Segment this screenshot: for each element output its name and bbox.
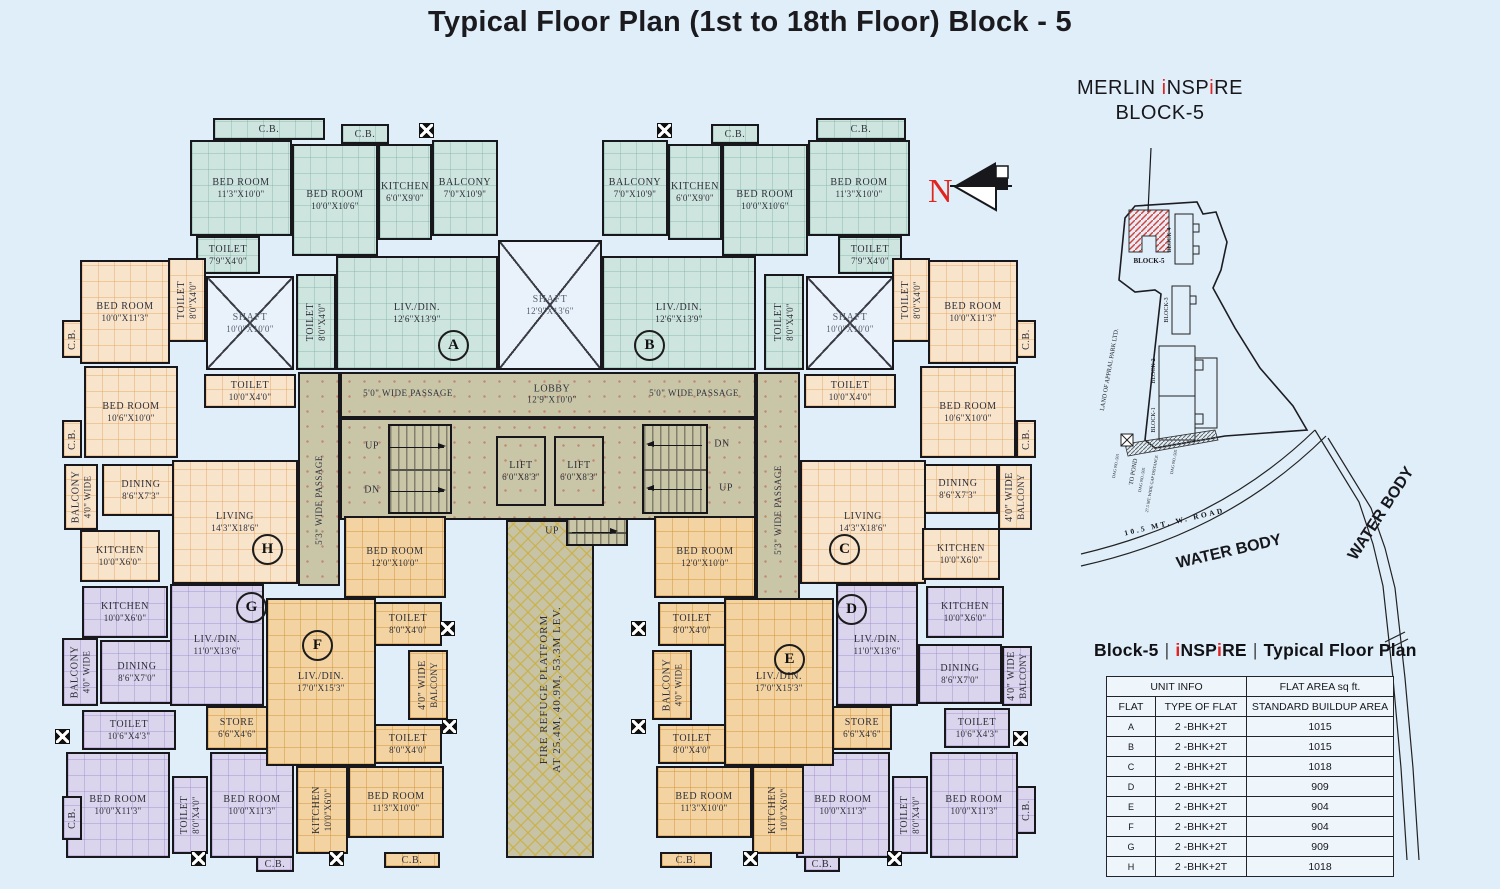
room-name: C.B. <box>67 329 78 350</box>
room-name: TOILET <box>179 796 190 834</box>
room-dimensions: 8'0"X4'0" <box>191 796 201 834</box>
wall-x-mark <box>1013 731 1028 746</box>
plan-label: LOBBY12'9"X10'0" <box>527 384 577 405</box>
wall-x-mark <box>55 729 70 744</box>
room-dimensions: 10'0"X4'0" <box>829 392 872 402</box>
room-toilet: TOILET8'0"X4'0" <box>168 258 206 342</box>
room-name: TOILET <box>110 719 148 730</box>
plan-label: UP <box>719 483 733 494</box>
room-toilet: TOILET8'0"X4'0" <box>658 724 726 764</box>
plan-label: UP <box>545 526 559 537</box>
table-row: B2 -BHK+2T1015 <box>1107 737 1394 757</box>
project-brand: MERLIN iNSPiRE BLOCK-5 <box>1055 76 1265 126</box>
wall-x-mark <box>657 123 672 138</box>
room-name: 4'0" WIDE <box>1004 472 1015 522</box>
room-dimensions: 6'0"X9'0" <box>386 193 424 203</box>
room-name: SHAFT <box>833 312 868 323</box>
table-row: D2 -BHK+2T909 <box>1107 777 1394 797</box>
room-name: TOILET <box>831 380 869 391</box>
room-dining: DINING8'6"X7'0" <box>918 644 1002 704</box>
room-name: DINING <box>117 661 156 672</box>
flat-b-mark: B <box>634 330 665 361</box>
room-toilet: TOILET10'6"X4'3" <box>944 708 1010 748</box>
room-dimensions: 11'0"X13'6" <box>853 646 900 656</box>
col-header: TYPE OF FLAT <box>1156 697 1247 717</box>
room-dining: DINING8'6"X7'0" <box>100 640 174 704</box>
wall-x-mark <box>442 719 457 734</box>
room-name: BED ROOM <box>736 189 793 200</box>
room-toilet: TOILET10'0"X4'0" <box>204 374 296 408</box>
room-dimensions: 8'6"X7'0" <box>941 675 979 685</box>
room-dimensions: 10'0"X11'3" <box>94 806 141 816</box>
north-arrow-icon: N <box>920 150 1020 220</box>
room-name: LIVING <box>844 511 882 522</box>
room-liv-din: LIV./DIN.17'0"X15'3" <box>724 598 834 766</box>
room-name: C.B. <box>259 124 280 135</box>
room-name: KITCHEN <box>381 181 429 192</box>
wall-x-mark <box>631 719 646 734</box>
north-arrow-outline <box>954 186 996 210</box>
room-dimensions: 4'0" WIDE <box>81 651 91 694</box>
room-c-b: C.B. <box>213 118 325 140</box>
room-name: TOILET <box>176 281 187 319</box>
room-dimensions: 14'3"X18'6" <box>211 523 258 533</box>
room-bed-room: BED ROOM10'0"X11'3" <box>80 260 170 364</box>
room-lift: LIFT6'0"X8'3" <box>554 436 604 506</box>
room-dimensions: 12'6"X13'9" <box>655 314 702 324</box>
room-dimensions: 10'0"X10'0" <box>226 324 273 334</box>
plan-label: 5'0" WIDE PASSAGE <box>649 388 739 398</box>
room-balcony: BALCONY4'0" WIDE <box>652 650 692 720</box>
room-name: C.B. <box>851 124 872 135</box>
room-dimensions: 8'0"X4'0" <box>317 303 327 341</box>
room-name: TOILET <box>305 303 316 341</box>
room-name: TOILET <box>209 244 247 255</box>
room-name: C.B. <box>1021 800 1032 821</box>
room-name: BED ROOM <box>675 791 732 802</box>
stair-direction-arrow <box>648 445 702 446</box>
room-name: BALCONY <box>69 646 80 699</box>
room-dimensions: 10'0"X6'0" <box>104 613 147 623</box>
room-name: TOILET <box>389 613 427 624</box>
wall-x-mark <box>631 621 646 636</box>
room-bed-room: BED ROOM10'0"X11'3" <box>928 260 1018 364</box>
project-block: BLOCK-5 <box>1055 101 1265 126</box>
room-balcony: BALCONY7'0"X10'9" <box>602 140 668 236</box>
room-dimensions: 11'3"X10'0" <box>372 803 419 813</box>
room-dimensions: 10'0"X11'3" <box>949 313 996 323</box>
flat-g-mark: G <box>236 592 267 623</box>
room-bed-room: BED ROOM10'6"X10'0" <box>84 366 178 458</box>
room-c-b: C.B. <box>804 856 840 872</box>
plan-label: 5'0" WIDE PASSAGE <box>363 388 453 398</box>
flat-c-mark: C <box>829 534 860 565</box>
room-name: STORE <box>220 717 255 728</box>
room-lift: LIFT6'0"X8'3" <box>496 436 546 506</box>
room-dimensions: 6'0"X8'3" <box>560 472 598 482</box>
room-name: BED ROOM <box>830 177 887 188</box>
room-dimensions: 6'0"X9'0" <box>676 193 714 203</box>
room-dining: DINING8'6"X7'3" <box>102 464 180 516</box>
stair-direction-arrow <box>390 491 444 492</box>
room-name: KITCHEN <box>311 786 322 834</box>
room-dimensions: 7'0"X10'9" <box>444 189 487 199</box>
room-name: BED ROOM <box>676 546 733 557</box>
room-name: KITCHEN <box>767 786 778 834</box>
table-row: F2 -BHK+2T904 <box>1107 817 1394 837</box>
room-name: BED ROOM <box>306 189 363 200</box>
room-name: LIFT <box>509 460 533 471</box>
plan-label: DN <box>364 485 379 496</box>
room-living: LIVING14'3"X18'6" <box>172 460 298 584</box>
room-name: TOILET <box>231 380 269 391</box>
room-dimensions: 7'9"X4'0" <box>209 256 247 266</box>
room-toilet: TOILET8'0"X4'0" <box>658 602 726 646</box>
room-dimensions: 4'0" WIDE <box>673 664 683 707</box>
room-dimensions: 12'9"X13'6" <box>526 306 573 316</box>
room-name: LIFT <box>567 460 591 471</box>
wall-x-mark <box>191 851 206 866</box>
room-dimensions: 11'0"X13'6" <box>193 646 240 656</box>
room-toilet: TOILET8'0"X4'0" <box>892 776 928 854</box>
room-dimensions: BALCONY <box>1018 653 1028 699</box>
room-dimensions: 10'0"X10'6" <box>741 201 788 211</box>
wall-x-mark <box>329 851 344 866</box>
room-shaft: SHAFT10'0"X10'0" <box>806 276 894 370</box>
flat-a-mark: A <box>438 330 469 361</box>
north-arrow-square <box>996 178 1008 190</box>
room-c-b: C.B. <box>256 856 294 872</box>
room-liv-din: LIV./DIN.17'0"X15'3" <box>266 598 376 766</box>
room-name: LIVING <box>216 511 254 522</box>
room-kitchen: KITCHEN10'0"X6'0" <box>80 530 160 582</box>
room-name: BALCONY <box>609 177 662 188</box>
room-name: KITCHEN <box>96 545 144 556</box>
room-dimensions: 8'0"X4'0" <box>912 281 922 319</box>
room-bed-room: BED ROOM10'0"X11'3" <box>930 752 1018 858</box>
room-bed-room: BED ROOM12'0"X10'0" <box>344 516 446 598</box>
project-name: MERLIN iNSPiRE <box>1055 76 1265 101</box>
room-name: DINING <box>940 663 979 674</box>
room-dimensions: 12'0"X10'0" <box>371 558 418 568</box>
room-name: BED ROOM <box>102 401 159 412</box>
room-name: 4'0" WIDE <box>417 660 428 710</box>
col-header: STANDARD BUILDUP AREA <box>1247 697 1394 717</box>
room-name: TOILET <box>958 717 996 728</box>
room-toilet: TOILET10'0"X4'0" <box>804 374 896 408</box>
room-name: BED ROOM <box>366 546 423 557</box>
room-name: SHAFT <box>233 312 268 323</box>
table-row: C2 -BHK+2T1018 <box>1107 757 1394 777</box>
table-row: H2 -BHK+2T1018 <box>1107 857 1394 877</box>
room-bed-room: BED ROOM11'3"X10'0" <box>808 140 910 236</box>
room-name: BED ROOM <box>945 794 1002 805</box>
room-toilet: TOILET8'0"X4'0" <box>374 602 442 646</box>
wall-x-mark <box>419 123 434 138</box>
room-dimensions: 11'3"X10'0" <box>680 803 727 813</box>
room-dimensions: 12'6"X13'9" <box>393 314 440 324</box>
room-name: KITCHEN <box>941 601 989 612</box>
room-name: C.B. <box>355 129 376 140</box>
room-name: BALCONY <box>661 659 672 712</box>
room-living: LIVING14'3"X18'6" <box>800 460 926 584</box>
wall-x-mark <box>743 851 758 866</box>
room-dimensions: 8'0"X4'0" <box>673 625 711 635</box>
room-dimensions: 10'6"X4'3" <box>956 729 999 739</box>
room-name: LIV./DIN. <box>194 634 240 645</box>
room-dimensions: 10'0"X11'3" <box>950 806 997 816</box>
room-name: FIRE REFUGE PLATFORM <box>538 614 550 764</box>
room-dimensions: 7'0"X10'9" <box>614 189 657 199</box>
room-dimensions: 10'0"X6'0" <box>779 789 789 832</box>
room-c-b: C.B. <box>1016 786 1036 834</box>
flat-h-mark: H <box>252 534 283 565</box>
room-dimensions: 14'3"X18'6" <box>839 523 886 533</box>
north-arrow-notch <box>996 166 1008 178</box>
room-name: LIV./DIN. <box>298 671 344 682</box>
room-store: STORE6'6"X4'6" <box>832 706 892 750</box>
room-name: C.B. <box>1021 429 1032 450</box>
room-name: KITCHEN <box>937 543 985 554</box>
room-dimensions: 10'0"X6'0" <box>940 555 983 565</box>
room-dimensions: 8'6"X7'0" <box>118 673 156 683</box>
room-name: DINING <box>938 478 977 489</box>
room-dimensions: 11'3"X10'0" <box>217 189 264 199</box>
table-row: E2 -BHK+2T904 <box>1107 797 1394 817</box>
room-c-b: C.B. <box>62 420 82 458</box>
room-bed-room: BED ROOM11'3"X10'0" <box>656 766 752 838</box>
room-name: BALCONY <box>70 471 81 524</box>
flat-e-mark: E <box>774 644 805 675</box>
north-label: N <box>928 173 953 210</box>
room-dimensions: 10'0"X6'0" <box>99 557 142 567</box>
room-balcony: BALCONY4'0" WIDE <box>62 638 98 706</box>
room-kitchen: KITCHEN10'0"X6'0" <box>926 586 1004 638</box>
room-name: TOILET <box>389 733 427 744</box>
room-dimensions: 10'6"X10'0" <box>944 413 991 423</box>
room-name: C.B. <box>812 859 833 870</box>
room-dimensions: 8'6"X7'3" <box>122 491 160 501</box>
room-kitchen: KITCHEN10'0"X6'0" <box>752 766 804 854</box>
room-4-0-wide: 4'0" WIDEBALCONY <box>998 464 1032 530</box>
room-dimensions: 6'6"X4'6" <box>843 729 881 739</box>
room-dimensions: 10'6"X4'3" <box>108 731 151 741</box>
room-dimensions: 10'0"X11'3" <box>228 806 275 816</box>
flat-f-mark: F <box>302 630 333 661</box>
room-dimensions: 17'0"X15'3" <box>755 683 802 693</box>
room-name: TOILET <box>851 244 889 255</box>
room-dimensions: 10'0"X6'0" <box>944 613 987 623</box>
room-4-0-wide: 4'0" WIDEBALCONY <box>1002 646 1032 706</box>
wall-x-mark <box>887 851 902 866</box>
page-title: Typical Floor Plan (1st to 18th Floor) B… <box>0 6 1500 39</box>
room-name: C.B. <box>265 859 286 870</box>
room-dimensions: 10'0"X4'0" <box>229 392 272 402</box>
room-toilet: TOILET8'0"X4'0" <box>374 724 442 764</box>
room-toilet: TOILET8'0"X4'0" <box>296 274 336 370</box>
room-name: LIV./DIN. <box>394 302 440 313</box>
stair-direction-arrow <box>390 447 444 448</box>
room-name: BED ROOM <box>89 794 146 805</box>
room-dining: DINING8'6"X7'3" <box>918 464 998 514</box>
room-kitchen: KITCHEN10'0"X6'0" <box>922 528 1000 580</box>
room-name: KITCHEN <box>101 601 149 612</box>
room-name: C.B. <box>402 855 423 866</box>
room-dimensions: 7'9"X4'0" <box>851 256 889 266</box>
wall-x-mark <box>440 621 455 636</box>
room-c-b: C.B. <box>816 118 906 140</box>
room-name: BED ROOM <box>814 794 871 805</box>
room-dimensions: 10'0"X11'3" <box>819 806 866 816</box>
room-dimensions: 8'6"X7'3" <box>939 490 977 500</box>
room-name: C.B. <box>725 129 746 140</box>
room-name: BED ROOM <box>367 791 424 802</box>
room-balcony: BALCONY7'0"X10'9" <box>432 140 498 236</box>
room-c-b: C.B. <box>1016 320 1036 358</box>
room-dimensions: BALCONY <box>429 662 439 708</box>
room-dimensions: 8'0"X4'0" <box>188 281 198 319</box>
room-dimensions: 8'0"X4'0" <box>673 745 711 755</box>
stair-direction-arrow <box>572 532 616 533</box>
room-kitchen: KITCHEN10'0"X6'0" <box>82 586 168 638</box>
flat-d-mark: D <box>836 594 867 625</box>
room-toilet: TOILET8'0"X4'0" <box>764 274 804 370</box>
room-name: 4'0" WIDE <box>1006 651 1017 701</box>
room-name: C.B. <box>67 808 78 829</box>
room-c-b: C.B. <box>384 852 440 868</box>
room-name: TOILET <box>900 281 911 319</box>
room-c-b: C.B. <box>660 852 712 868</box>
staircase <box>388 424 452 514</box>
room-name: LIV./DIN. <box>656 302 702 313</box>
north-arrow-solid <box>954 162 996 186</box>
room-name: KITCHEN <box>671 181 719 192</box>
room-dimensions: 8'0"X4'0" <box>389 625 427 635</box>
room-bed-room: BED ROOM11'3"X10'0" <box>190 140 292 236</box>
room-shaft: SHAFT12'9"X13'6" <box>498 240 602 370</box>
room-store: STORE6'6"X4'6" <box>206 706 268 750</box>
plan-label: DN <box>714 439 729 450</box>
room-toilet: TOILET10'6"X4'3" <box>82 710 176 750</box>
plan-label: 5'3" WIDE PASSAGE <box>314 455 324 545</box>
table-header-row: FLAT TYPE OF FLAT STANDARD BUILDUP AREA <box>1107 697 1394 717</box>
room-shaft: SHAFT10'0"X10'0" <box>206 276 294 370</box>
room-balcony: BALCONY4'0" WIDE <box>64 464 98 530</box>
room-dimensions: AT 25.4M, 40.9M, 53.3M LEV. <box>551 606 563 773</box>
room-bed-room: BED ROOM10'0"X10'6" <box>722 144 808 256</box>
room-dimensions: 8'0"X4'0" <box>389 745 427 755</box>
room-name: BED ROOM <box>223 794 280 805</box>
room-dimensions: 11'3"X10'0" <box>835 189 882 199</box>
table-row: A2 -BHK+2T1015 <box>1107 717 1394 737</box>
col-header: FLAT AREA sq ft. <box>1247 677 1394 697</box>
staircase <box>642 424 708 514</box>
room-kitchen: KITCHEN10'0"X6'0" <box>296 766 348 854</box>
room-kitchen: KITCHEN6'0"X9'0" <box>668 144 722 240</box>
room-name: TOILET <box>899 796 910 834</box>
room-bed-room: BED ROOM10'0"X11'3" <box>210 752 294 858</box>
room-name: STORE <box>845 717 880 728</box>
page: Typical Floor Plan (1st to 18th Floor) B… <box>0 0 1500 889</box>
room-c-b: C.B. <box>1016 420 1036 458</box>
stair-direction-arrow <box>648 489 702 490</box>
legend-heading: Block-5|iNSPiRE|Typical Floor Plan <box>1094 640 1394 661</box>
unit-info-table: UNIT INFO FLAT AREA sq ft. FLAT TYPE OF … <box>1106 676 1394 877</box>
room-name: BED ROOM <box>96 301 153 312</box>
room-name: BED ROOM <box>944 301 1001 312</box>
table-row: G2 -BHK+2T909 <box>1107 837 1394 857</box>
room-dimensions: 8'0"X4'0" <box>911 796 921 834</box>
room-name: C.B. <box>1021 329 1032 350</box>
room-kitchen: KITCHEN6'0"X9'0" <box>378 144 432 240</box>
room-dimensions: 17'0"X15'3" <box>297 683 344 693</box>
room-c-b: C.B. <box>341 124 389 144</box>
room-dimensions: BALCONY <box>1016 474 1026 520</box>
room-name: LIV./DIN. <box>854 634 900 645</box>
room-name: BED ROOM <box>939 401 996 412</box>
room-name: DINING <box>121 479 160 490</box>
room-bed-room: BED ROOM10'0"X10'6" <box>292 144 378 256</box>
room-name: BED ROOM <box>212 177 269 188</box>
col-header: FLAT <box>1107 697 1156 717</box>
room-4-0-wide: 4'0" WIDEBALCONY <box>408 650 448 720</box>
room-bed-room: BED ROOM12'0"X10'0" <box>654 516 756 598</box>
room-dimensions: 10'0"X6'0" <box>323 789 333 832</box>
room-bed-room: BED ROOM10'0"X11'3" <box>796 752 890 858</box>
room-name: C.B. <box>67 429 78 450</box>
room-dimensions: 10'0"X10'0" <box>826 324 873 334</box>
room-name: C.B. <box>676 855 697 866</box>
room-name: TOILET <box>773 303 784 341</box>
room-dimensions: 4'0" WIDE <box>82 476 92 519</box>
room-dimensions: 10'0"X10'6" <box>311 201 358 211</box>
room-dimensions: 10'0"X11'3" <box>101 313 148 323</box>
col-header: UNIT INFO <box>1107 677 1247 697</box>
room-toilet: TOILET8'0"X4'0" <box>892 258 930 342</box>
room-dimensions: 12'0"X10'0" <box>681 558 728 568</box>
room-name: BALCONY <box>439 177 492 188</box>
plan-label: 5'3" WIDE PASSAGE <box>773 465 783 555</box>
room-c-b: C.B. <box>62 320 82 358</box>
room-dimensions: 6'6"X4'6" <box>218 729 256 739</box>
room-bed-room: BED ROOM11'3"X10'0" <box>348 766 444 838</box>
room-fire-refuge-platform: FIRE REFUGE PLATFORMAT 25.4M, 40.9M, 53.… <box>506 520 594 858</box>
room-name: TOILET <box>673 613 711 624</box>
room-liv-din: LIV./DIN.12'6"X13'9" <box>336 256 498 370</box>
room-c-b: C.B. <box>711 124 759 144</box>
plan-label: UP <box>365 441 379 452</box>
room-toilet: TOILET8'0"X4'0" <box>172 776 208 854</box>
room-bed-room: BED ROOM10'6"X10'0" <box>920 366 1016 458</box>
table-header-row: UNIT INFO FLAT AREA sq ft. <box>1107 677 1394 697</box>
room-name: TOILET <box>673 733 711 744</box>
room-dimensions: 10'6"X10'0" <box>107 413 154 423</box>
room-dimensions: 6'0"X8'3" <box>502 472 540 482</box>
room-dimensions: 8'0"X4'0" <box>785 303 795 341</box>
room-c-b: C.B. <box>62 796 82 840</box>
room-name: SHAFT <box>533 294 568 305</box>
room-liv-din: LIV./DIN.12'6"X13'9" <box>602 256 756 370</box>
